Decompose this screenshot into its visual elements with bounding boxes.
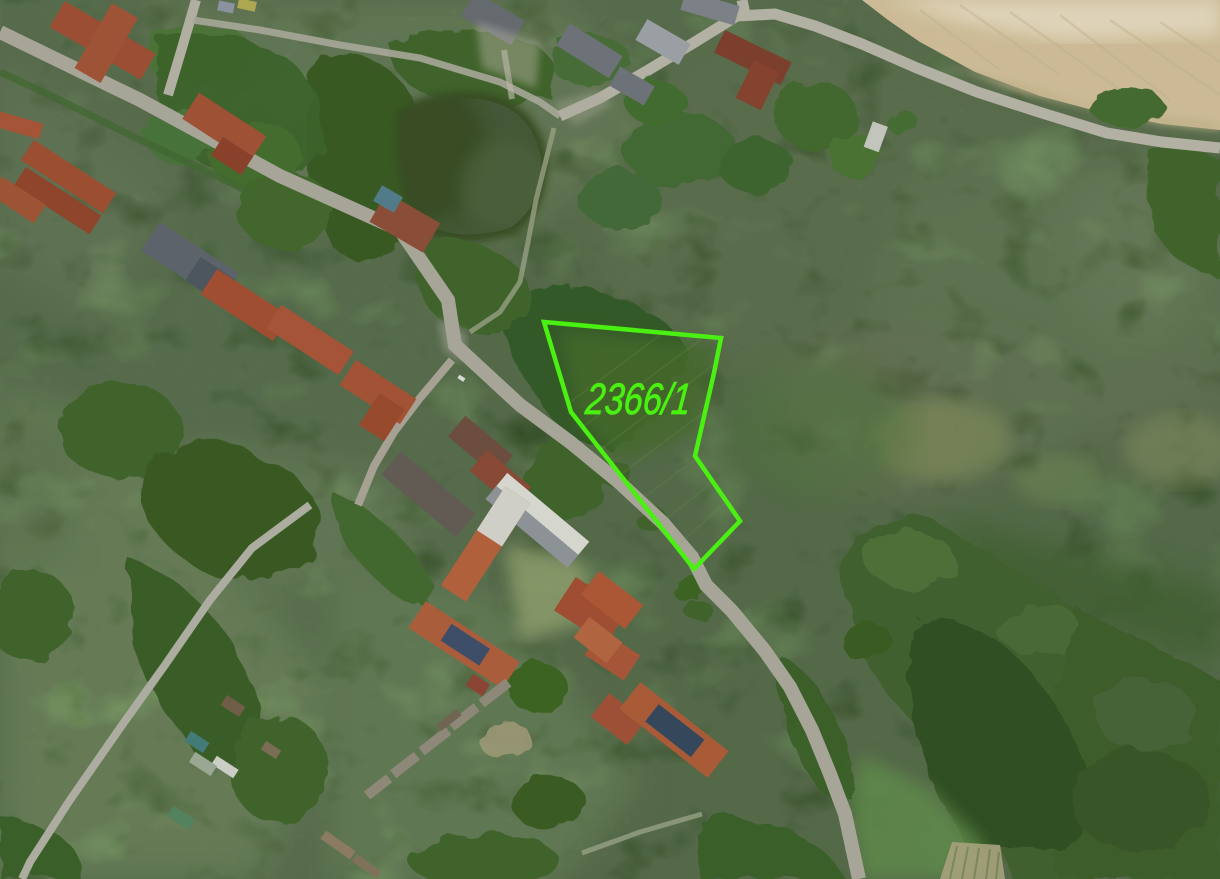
svg-text:2366/1: 2366/1 bbox=[583, 375, 694, 424]
